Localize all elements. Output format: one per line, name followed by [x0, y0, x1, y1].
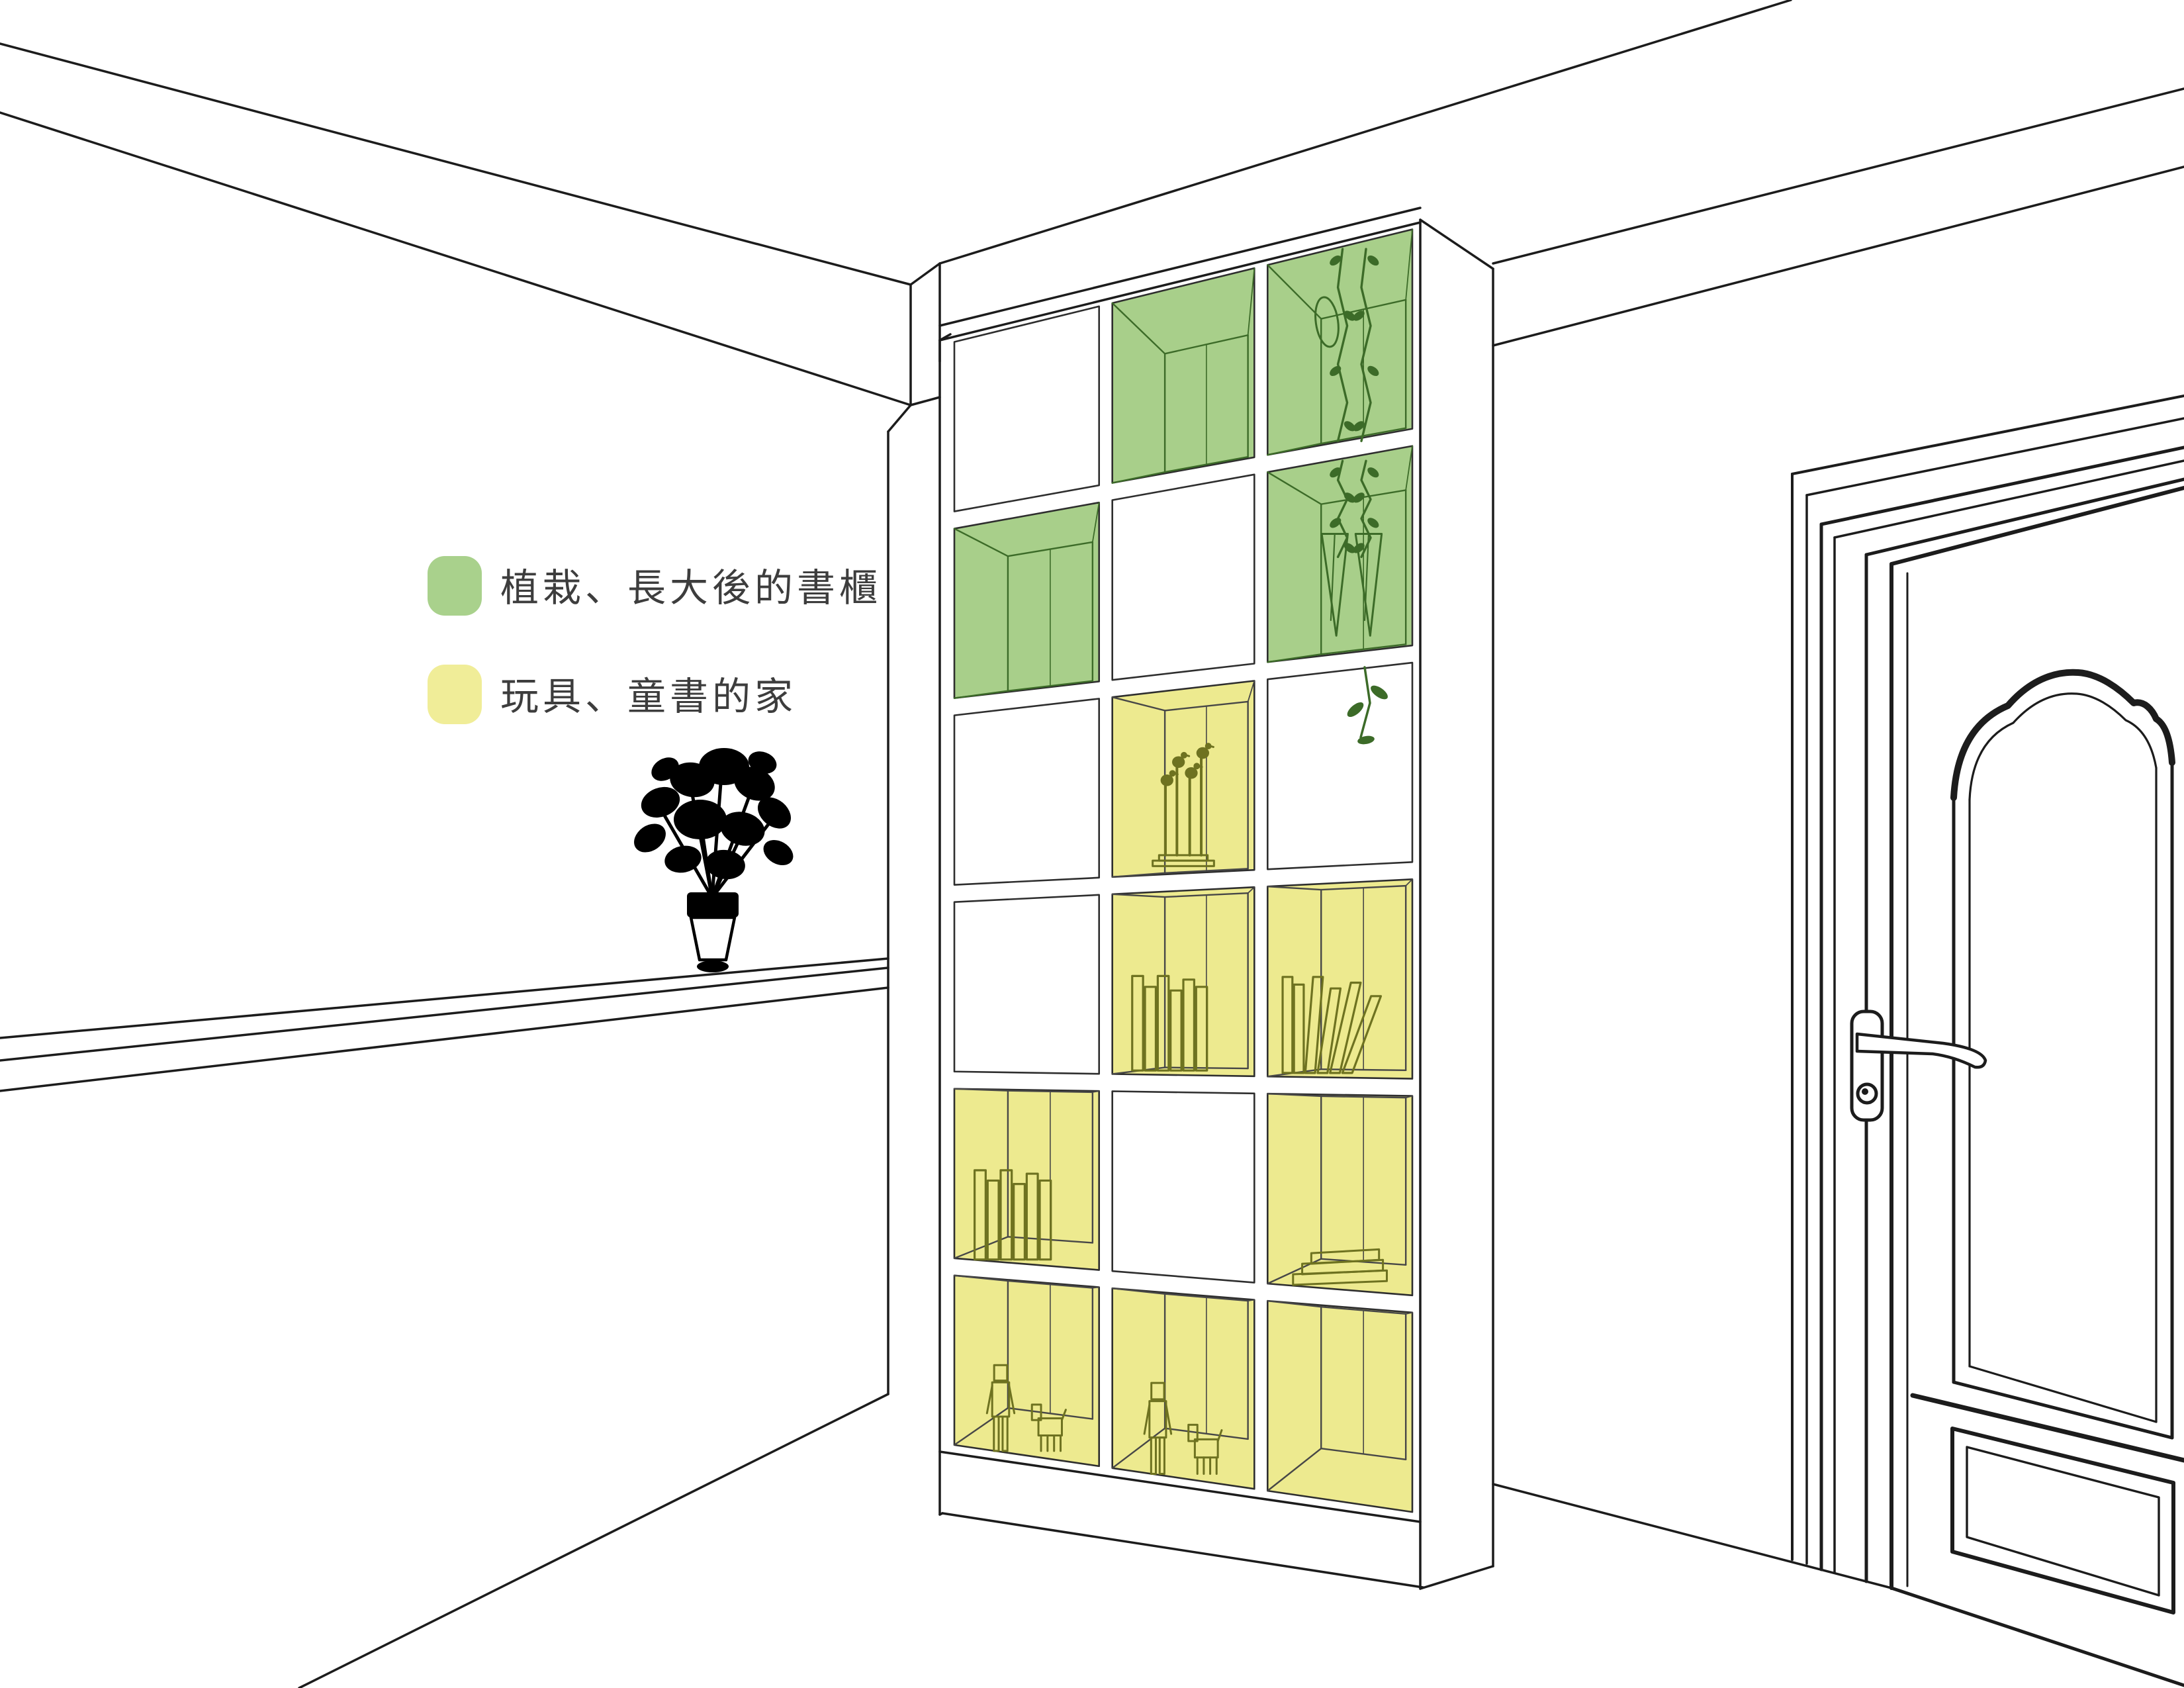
shelf-cell-r6c2-robot-toys [1113, 1288, 1255, 1489]
legend-swatch-yellow-icon [428, 665, 482, 724]
room-illustration: 植栽、長大後的書櫃 玩具、童書的家 [0, 0, 2184, 1688]
cube-bookshelf [940, 208, 1493, 1589]
shelf-cell-r6c1-robot-toys [954, 1276, 1099, 1466]
door-lever-handle [1852, 1011, 1985, 1120]
shelf-cell-r5c2-none [1113, 1091, 1255, 1282]
shelf-cell-r1c1-none [954, 306, 1099, 512]
legend-swatch-green-icon [428, 556, 482, 616]
scene-svg: 植栽、長大後的書櫃 玩具、童書的家 [0, 0, 2184, 1688]
shelf-cell-r4c2-upright-books [1113, 887, 1255, 1076]
shelf-cell-r2c1-empty [954, 502, 1099, 698]
shelf-cell-r6c3-empty [1267, 1301, 1412, 1512]
shelf-cell-r3c3-none [1267, 663, 1412, 869]
shelf-cell-r5c3-stepped-riser [1267, 1094, 1412, 1295]
shelf-cell-r5c1-upright-books [954, 1089, 1099, 1270]
legend: 植栽、長大後的書櫃 玩具、童書的家 [428, 556, 882, 724]
shelf-cell-r4c1-none [954, 895, 1099, 1074]
shelf-cell-r2c2-none [1113, 475, 1255, 680]
door-keyhole [1858, 1084, 1876, 1103]
shelf-cell-r3c1-none [954, 698, 1099, 884]
shelf-cell-r1c3-hanging-plant-upper [1267, 229, 1412, 455]
flower-vase [629, 747, 797, 972]
legend-label-yellow: 玩具、童書的家 [500, 674, 797, 719]
shelf-cell-r2c3-hanging-plant-lower [1267, 446, 1412, 662]
shelf-cell-r4c3-leaning-books [1267, 879, 1412, 1078]
shelf-cell-r3c2-bird-sculpture [1113, 680, 1255, 876]
legend-label-green: 植栽、長大後的書櫃 [500, 565, 882, 610]
shelf-cell-r1c2-empty [1113, 268, 1255, 483]
